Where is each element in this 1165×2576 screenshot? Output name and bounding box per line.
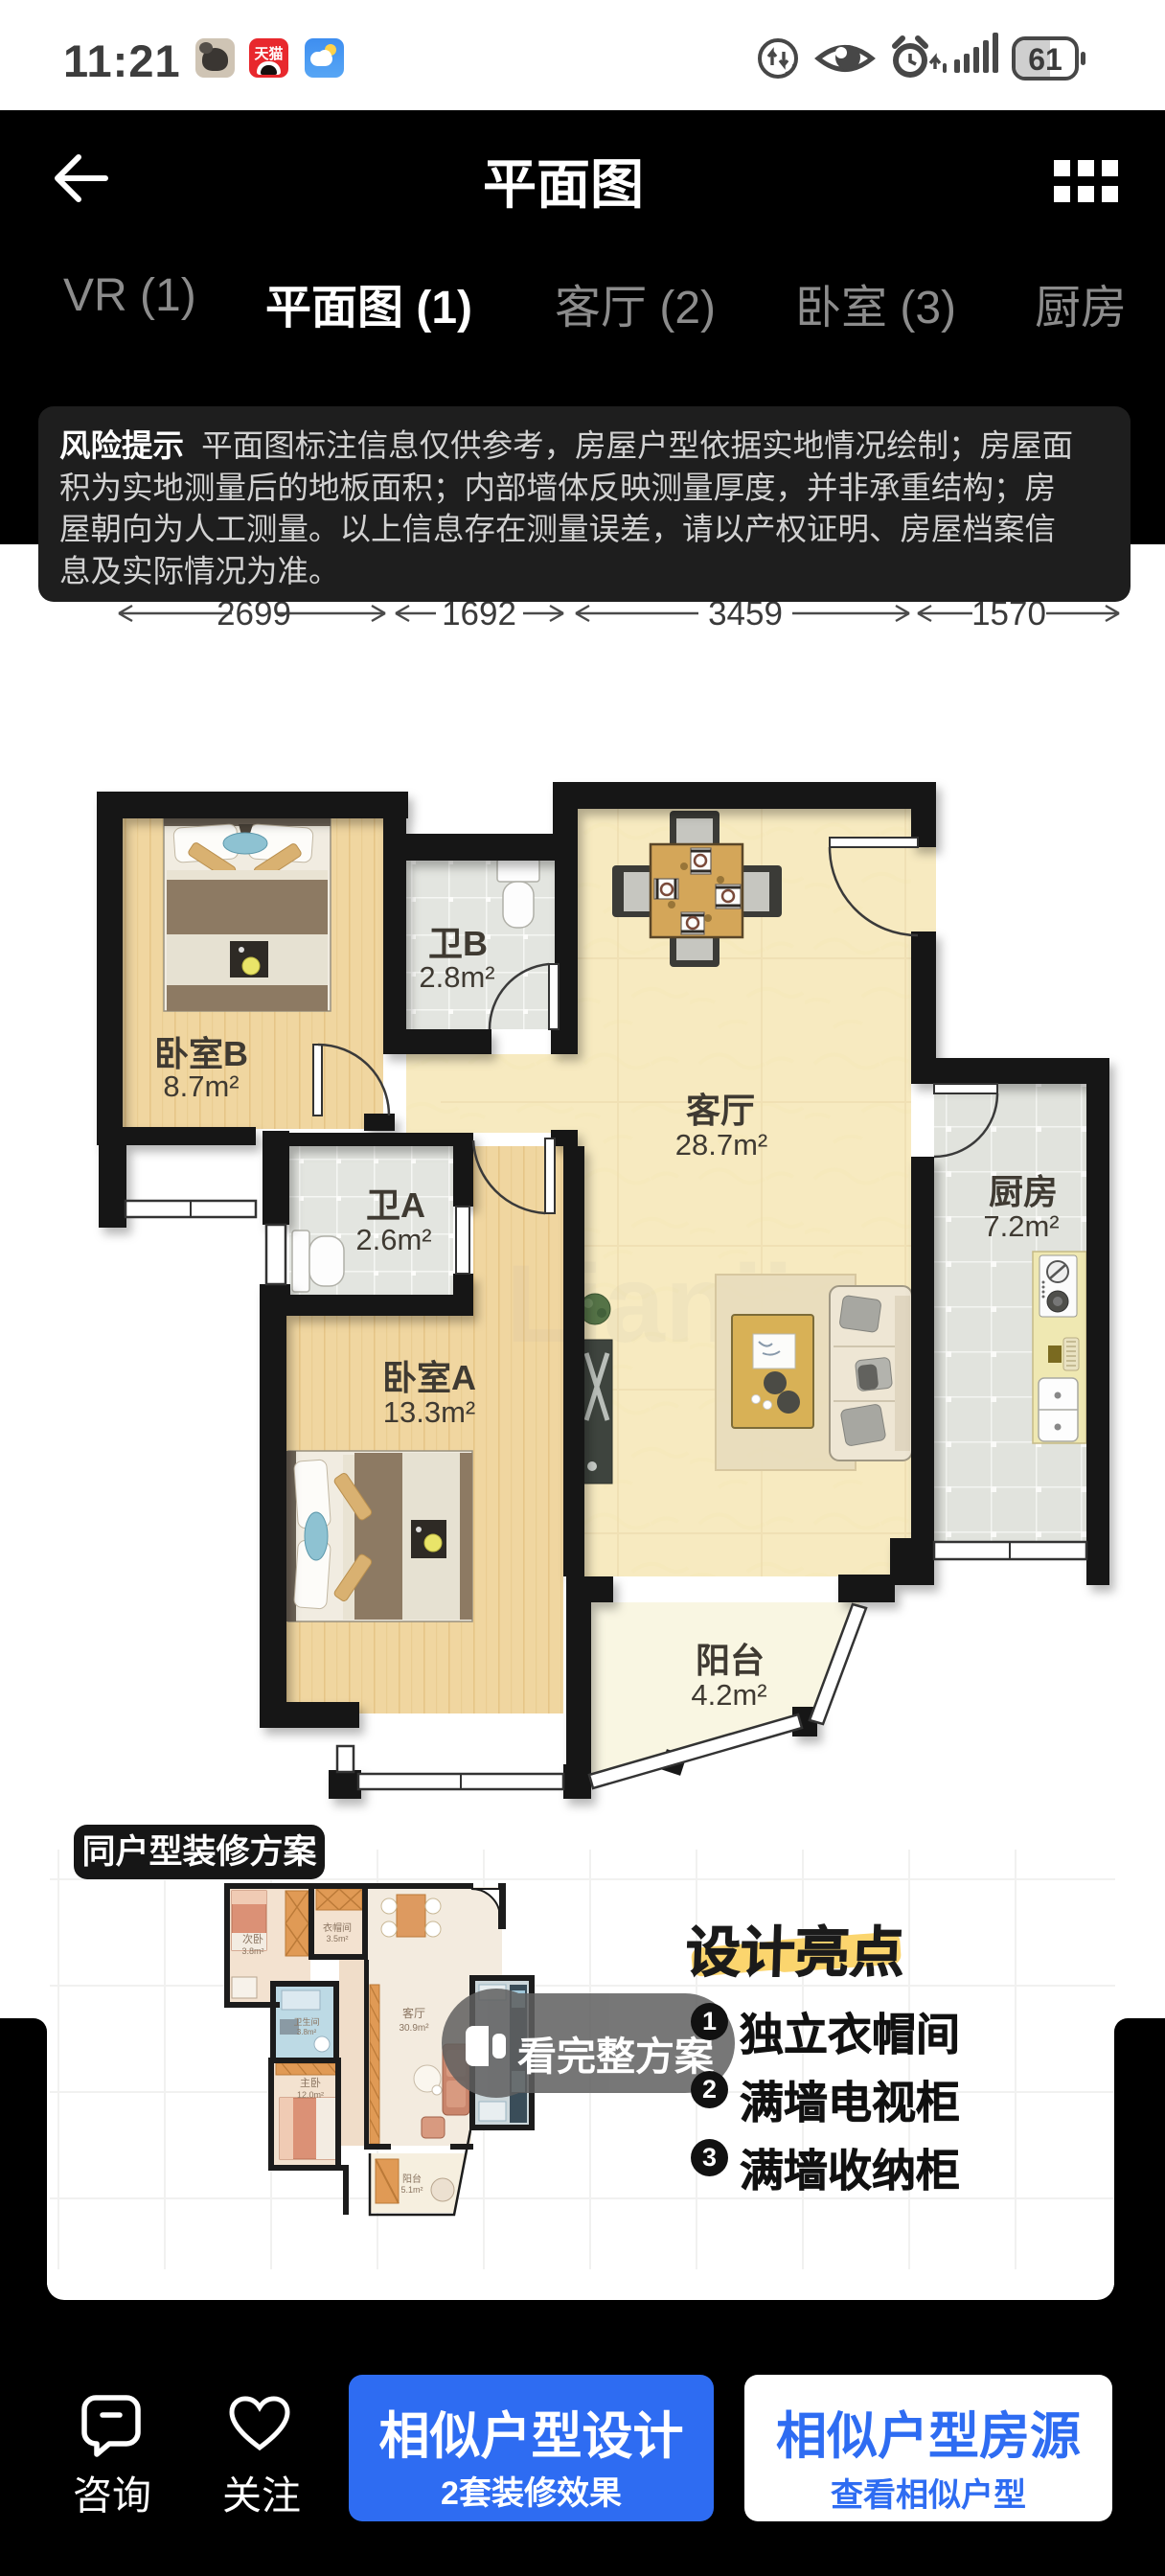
svg-text:2.6m²: 2.6m²	[355, 1223, 431, 1256]
svg-text:7.2m²: 7.2m²	[983, 1209, 1059, 1243]
svg-text:客厅: 客厅	[686, 1091, 755, 1130]
svg-text:卫B: 卫B	[428, 924, 488, 963]
svg-text:12.0m²: 12.0m²	[297, 2090, 324, 2100]
svg-text:13.3m²: 13.3m²	[383, 1395, 475, 1429]
svg-text:4.2m²: 4.2m²	[691, 1678, 766, 1712]
svg-text:主卧: 主卧	[300, 2077, 321, 2089]
svg-text:厨房: 厨房	[989, 1172, 1058, 1211]
svg-text:客厅: 客厅	[402, 2006, 425, 2020]
svg-text:3.8m²: 3.8m²	[297, 2028, 317, 2036]
svg-text:卧室A: 卧室A	[382, 1358, 476, 1397]
svg-text:3.8m²: 3.8m²	[241, 1946, 263, 1956]
svg-text:8.7m²: 8.7m²	[163, 1069, 239, 1103]
svg-text:衣帽间: 衣帽间	[323, 1921, 352, 1934]
svg-text:卧室B: 卧室B	[154, 1034, 248, 1073]
svg-text:2.8m²: 2.8m²	[419, 960, 494, 994]
svg-text:阳台: 阳台	[696, 1641, 765, 1680]
svg-text:卫A: 卫A	[366, 1185, 425, 1225]
svg-text:3.5m²: 3.5m²	[326, 1934, 348, 1943]
svg-text:阳台: 阳台	[402, 2173, 422, 2185]
svg-text:28.7m²: 28.7m²	[675, 1128, 767, 1161]
svg-text:61: 61	[1028, 42, 1062, 77]
svg-text:卫生间: 卫生间	[293, 2016, 319, 2027]
svg-text:5.1m²: 5.1m²	[400, 2185, 423, 2195]
svg-text:30.9m²: 30.9m²	[399, 2023, 429, 2034]
svg-text:次卧: 次卧	[242, 1932, 263, 1945]
